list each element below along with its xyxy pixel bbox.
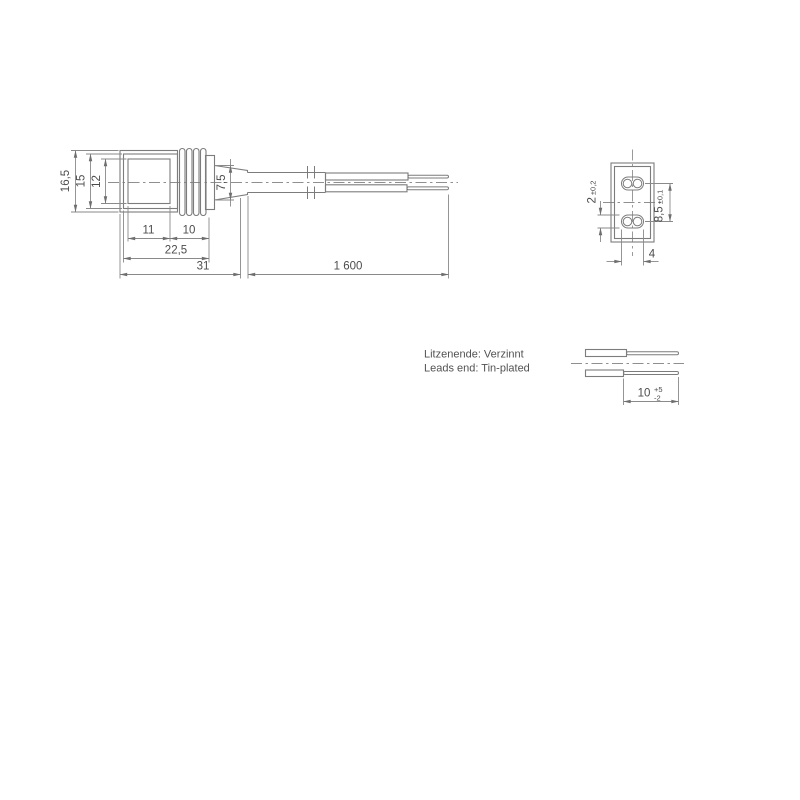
dim-front-length: 22,5 [124, 245, 210, 259]
lead-lower-insulation [326, 185, 408, 192]
detail-lead-upper-insulation [586, 350, 627, 357]
dim-label: 7,5 [216, 175, 228, 191]
note-english: Leads end: Tin-plated [424, 363, 530, 375]
dim-label: 16,5 [60, 170, 72, 192]
contact-hole [633, 217, 642, 226]
dim-strip-length: 10 +5 -2 [624, 377, 679, 405]
technical-drawing: 16,5 15 12 7,5 11 10 [0, 0, 800, 800]
strain-relief-ribs [180, 149, 207, 216]
extension-lines-bottom [120, 195, 449, 279]
dim-tolerance-minus: -2 [654, 394, 661, 403]
dim-label: 1 600 [334, 261, 363, 273]
contact-hole [633, 179, 642, 188]
contact-hole [623, 179, 632, 188]
rib [187, 149, 193, 216]
dim-label: 4 [649, 249, 656, 261]
side-view: 16,5 15 12 7,5 11 10 [60, 149, 458, 279]
detail-lead-lower-insulation [586, 370, 624, 377]
connector-body-mid-outline [124, 154, 178, 209]
dim-cable-length: 1 600 [248, 261, 449, 275]
drawing-page: 16,5 15 12 7,5 11 10 [0, 0, 800, 800]
dim-label: 22,5 [165, 245, 187, 257]
note-german: Litzenende: Verzinnt [424, 349, 524, 361]
connector-front-face [128, 159, 170, 204]
rib [180, 149, 186, 216]
lead-lower-tinned-end [407, 187, 449, 190]
dim-label: 2±0,2 [587, 181, 599, 204]
connector-body-outline [120, 151, 178, 213]
detail-lead-upper-tinned-end [627, 352, 679, 355]
front-view: 8,5±0,1 2±0,2 4 [587, 150, 674, 266]
dim-label: 12 [91, 175, 103, 188]
detail-lead-lower-tinned-end [624, 372, 679, 375]
lead-upper-tinned-end [408, 175, 449, 178]
dim-label: 11 [143, 225, 155, 237]
contact-hole [623, 217, 632, 226]
dim-label: 10 [638, 388, 651, 400]
rib [194, 149, 200, 216]
dim-rib-width: 10 [170, 225, 209, 239]
dim-body-length: 31 [120, 261, 241, 275]
dim-label: 8,5±0,1 [654, 190, 666, 223]
dim-label: 31 [197, 261, 210, 273]
dim-label: 15 [76, 175, 88, 188]
lead-upper-insulation [326, 173, 409, 180]
dim-height-inner: 12 [91, 159, 127, 204]
dim-height-outer: 16,5 [60, 151, 119, 213]
lead-end-detail: Litzenende: Verzinnt Leads end: Tin-plat… [424, 349, 684, 406]
dim-label: 10 [183, 225, 196, 237]
dim-inner-width: 11 [128, 225, 170, 239]
